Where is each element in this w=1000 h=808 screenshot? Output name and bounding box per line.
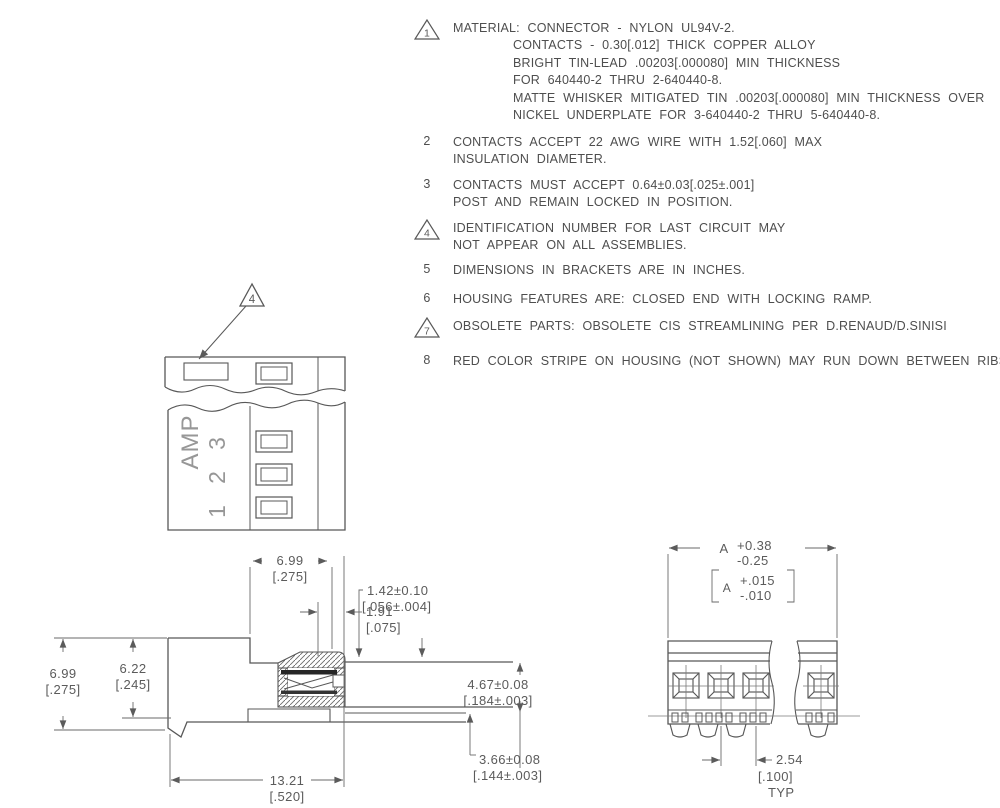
- note-line: DIMENSIONS IN BRACKETS ARE IN INCHES.: [453, 262, 745, 279]
- circuit-number-3: 3: [204, 436, 230, 450]
- note-number: 4: [424, 228, 430, 240]
- note-line: CONTACTS - 0.30[.012] THICK COPPER ALLOY: [513, 37, 985, 54]
- note-number: 3: [413, 176, 441, 193]
- dim-wall-mm: 1.42±0.10: [367, 583, 428, 598]
- end-view: [648, 641, 860, 737]
- dim-post-in: [.144±.003]: [473, 768, 542, 783]
- note-line: MATERIAL: CONNECTOR - NYLON UL94V-2.: [453, 20, 985, 37]
- dim-post-mm: 3.66±0.08: [479, 752, 540, 767]
- dim-length-in: [.520]: [270, 789, 305, 804]
- housing-fragment-upper: [165, 357, 345, 395]
- note-line: NICKEL UNDERPLATE FOR 3-640440-2 THRU 5-…: [513, 107, 985, 124]
- dim-pitch-mm: 2.54: [776, 752, 803, 767]
- front-fragment-texts: 4 AMP 3 2 1: [177, 294, 256, 518]
- dim-overall-height-in: [.275]: [46, 682, 81, 697]
- dim-pitch-typ: TYP: [768, 785, 794, 800]
- note-line: INSULATION DIAMETER.: [453, 151, 822, 168]
- dim-offset-in: [.075]: [366, 620, 401, 635]
- side-section-view: [168, 638, 513, 737]
- dim-a-label: A: [719, 541, 728, 556]
- dim-overall-height-mm: 6.99: [50, 666, 77, 681]
- note-line: OBSOLETE PARTS: OBSOLETE CIS STREAMLININ…: [453, 318, 947, 335]
- dim-opening-in: [.184±.003]: [463, 693, 532, 708]
- note-line: CONTACTS MUST ACCEPT 0.64±0.03[.025±.001…: [453, 177, 754, 194]
- flag-triangle-icon: 1: [413, 19, 441, 41]
- contact-section-hatch: [278, 652, 345, 707]
- dim-a-inch-minus: -.010: [740, 588, 772, 603]
- note-6: 6 HOUSING FEATURES ARE: CLOSED END WITH …: [413, 291, 872, 308]
- end-view-dim-texts: A +0.38 -0.25 A +.015 -.010 2.54 [.100] …: [719, 538, 802, 800]
- polarizing-ribs: [672, 713, 834, 722]
- dim-wall-in: [.056±.004]: [362, 599, 431, 614]
- note-line: RED COLOR STRIPE ON HOUSING (NOT SHOWN) …: [453, 353, 1000, 370]
- circuit-number-1: 1: [204, 504, 230, 518]
- note-number: 7: [424, 326, 430, 338]
- dim-top-width-in: [.275]: [273, 569, 308, 584]
- note-line: BRIGHT TIN-LEAD .00203[.000080] MIN THIC…: [513, 55, 985, 72]
- mounting-feet: [670, 724, 828, 737]
- note-line: CONTACTS ACCEPT 22 AWG WIRE WITH 1.52[.0…: [453, 134, 822, 151]
- note-line: MATTE WHISKER MITIGATED TIN .00203[.0000…: [513, 90, 985, 107]
- flag-4-number: 4: [249, 294, 256, 306]
- dim-a-minus: -0.25: [737, 553, 769, 568]
- dim-pitch-in: [.100]: [758, 769, 793, 784]
- id-number-pad: [184, 363, 228, 380]
- note-8: 8 RED COLOR STRIPE ON HOUSING (NOT SHOWN…: [413, 353, 1000, 370]
- note-7: 7 OBSOLETE PARTS: OBSOLETE CIS STREAMLIN…: [413, 318, 947, 335]
- note-1: 1 MATERIAL: CONNECTOR - NYLON UL94V-2. C…: [413, 20, 985, 124]
- circuit-number-2: 2: [204, 470, 230, 484]
- note-3: 3 CONTACTS MUST ACCEPT 0.64±0.03[.025±.0…: [413, 177, 754, 212]
- note-line: NOT APPEAR ON ALL ASSEMBLIES.: [453, 237, 785, 254]
- dim-inner-height-mm: 6.22: [120, 661, 147, 676]
- dim-opening-mm: 4.67±0.08: [467, 677, 528, 692]
- note-line: POST AND REMAIN LOCKED IN POSITION.: [453, 194, 754, 211]
- drawing-sheet: 4 AMP 3 2 1: [0, 0, 1000, 808]
- note-line: HOUSING FEATURES ARE: CLOSED END WITH LO…: [453, 291, 872, 308]
- note-number: 2: [413, 133, 441, 150]
- note-line: IDENTIFICATION NUMBER FOR LAST CIRCUIT M…: [453, 220, 785, 237]
- flag-triangle-icon: 7: [413, 317, 441, 339]
- dim-a-plus: +0.38: [737, 538, 772, 553]
- note-line: FOR 640440-2 THRU 2-640440-8.: [513, 72, 985, 89]
- flag-triangle-icon: 4: [413, 219, 441, 241]
- dim-a-inch-plus: +.015: [740, 573, 775, 588]
- dim-a-inch-label: A: [723, 581, 731, 595]
- note-number: 5: [413, 261, 441, 278]
- front-fragment-view: [165, 284, 345, 530]
- dim-top-width-mm: 6.99: [277, 553, 304, 568]
- note-2: 2 CONTACTS ACCEPT 22 AWG WIRE WITH 1.52[…: [413, 134, 822, 169]
- note-number: 6: [413, 290, 441, 307]
- brand-stamp: AMP: [177, 414, 204, 469]
- note-number: 1: [424, 28, 430, 40]
- note-4: 4 IDENTIFICATION NUMBER FOR LAST CIRCUIT…: [413, 220, 785, 255]
- note-5: 5 DIMENSIONS IN BRACKETS ARE IN INCHES.: [413, 262, 745, 279]
- dim-length-mm: 13.21: [270, 773, 305, 788]
- dim-inner-height-in: [.245]: [116, 677, 151, 692]
- note-number: 8: [413, 352, 441, 369]
- contact-windows: [673, 673, 834, 698]
